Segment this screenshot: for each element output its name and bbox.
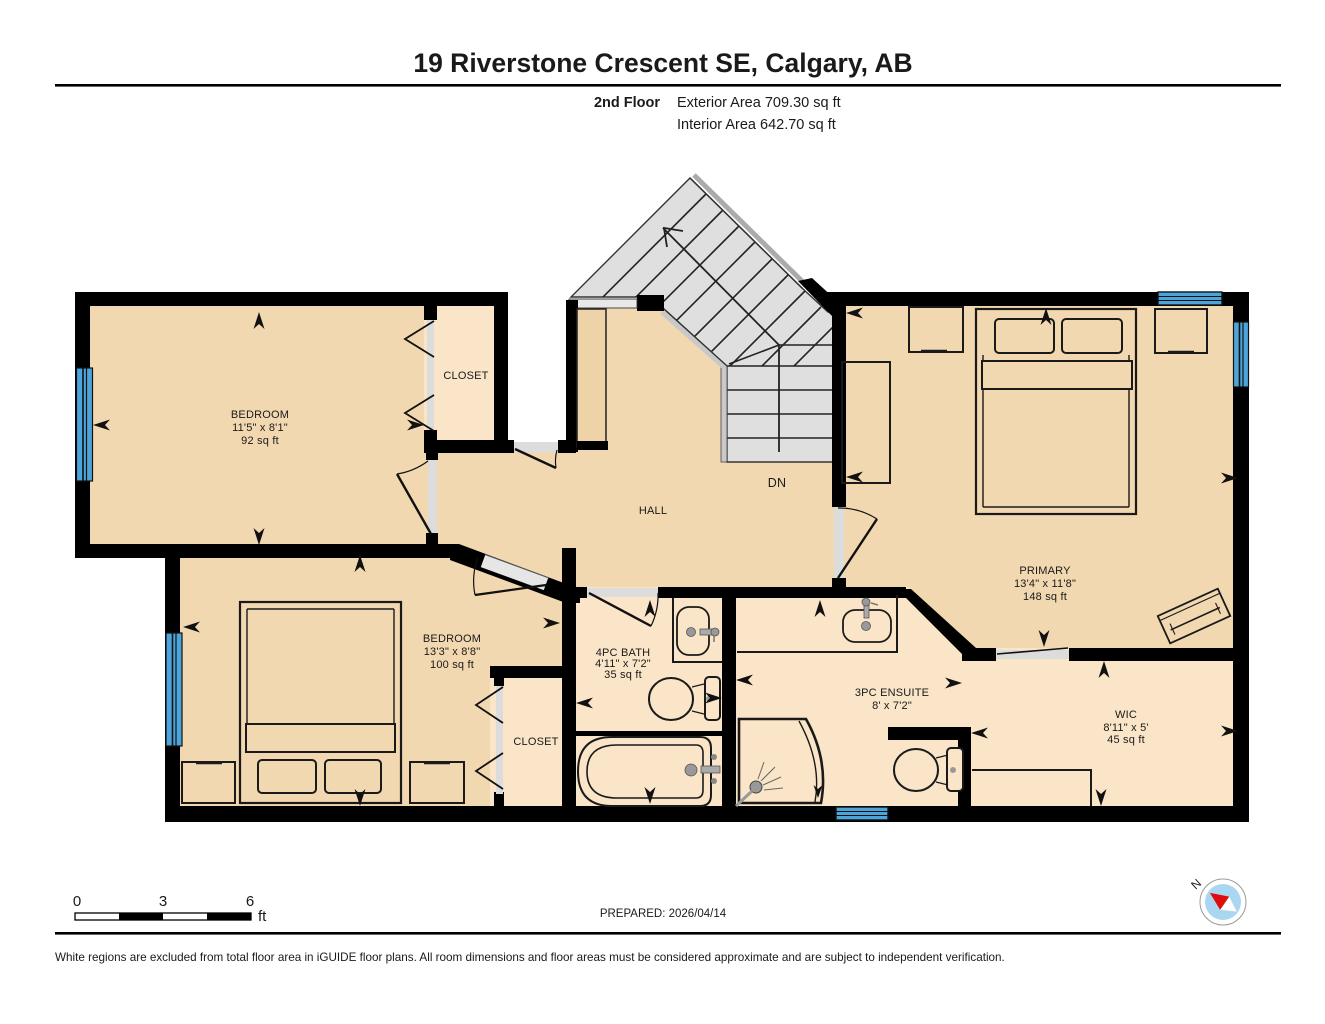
svg-text:13'4" x 11'8": 13'4" x 11'8" bbox=[1014, 578, 1076, 590]
svg-text:100 sq ft: 100 sq ft bbox=[430, 659, 474, 671]
svg-text:HALL: HALL bbox=[639, 505, 667, 517]
svg-text:3: 3 bbox=[159, 893, 167, 910]
svg-text:ft: ft bbox=[258, 908, 267, 925]
svg-text:White regions are excluded fro: White regions are excluded from total fl… bbox=[55, 951, 1005, 964]
svg-text:11'5" x 8'1": 11'5" x 8'1" bbox=[232, 422, 288, 434]
svg-text:19 Riverstone Crescent SE, Cal: 19 Riverstone Crescent SE, Calgary, AB bbox=[413, 48, 912, 78]
svg-text:BEDROOM: BEDROOM bbox=[231, 409, 289, 421]
svg-text:6: 6 bbox=[246, 893, 254, 910]
svg-text:0: 0 bbox=[73, 893, 81, 910]
svg-text:3PC ENSUITE: 3PC ENSUITE bbox=[855, 687, 929, 699]
svg-text:CLOSET: CLOSET bbox=[513, 736, 558, 748]
svg-text:8' x 7'2": 8' x 7'2" bbox=[872, 700, 912, 712]
svg-text:2nd Floor: 2nd Floor bbox=[594, 95, 660, 111]
svg-text:13'3" x 8'8": 13'3" x 8'8" bbox=[424, 646, 481, 658]
svg-text:DN: DN bbox=[768, 476, 786, 490]
svg-text:PREPARED: 2026/04/14: PREPARED: 2026/04/14 bbox=[600, 908, 727, 920]
svg-text:92 sq ft: 92 sq ft bbox=[241, 435, 279, 447]
svg-text:45 sq ft: 45 sq ft bbox=[1107, 734, 1145, 746]
svg-text:CLOSET: CLOSET bbox=[443, 370, 488, 382]
svg-text:Interior Area 642.70 sq ft: Interior Area 642.70 sq ft bbox=[677, 117, 836, 133]
svg-text:PRIMARY: PRIMARY bbox=[1019, 565, 1071, 577]
svg-text:BEDROOM: BEDROOM bbox=[423, 633, 481, 645]
svg-text:N: N bbox=[1188, 876, 1204, 892]
svg-text:35 sq ft: 35 sq ft bbox=[604, 669, 642, 681]
svg-text:Exterior Area 709.30 sq ft: Exterior Area 709.30 sq ft bbox=[677, 95, 841, 111]
svg-text:WIC: WIC bbox=[1115, 709, 1137, 721]
svg-text:148 sq ft: 148 sq ft bbox=[1023, 591, 1067, 603]
svg-text:8'11" x 5': 8'11" x 5' bbox=[1103, 722, 1148, 734]
